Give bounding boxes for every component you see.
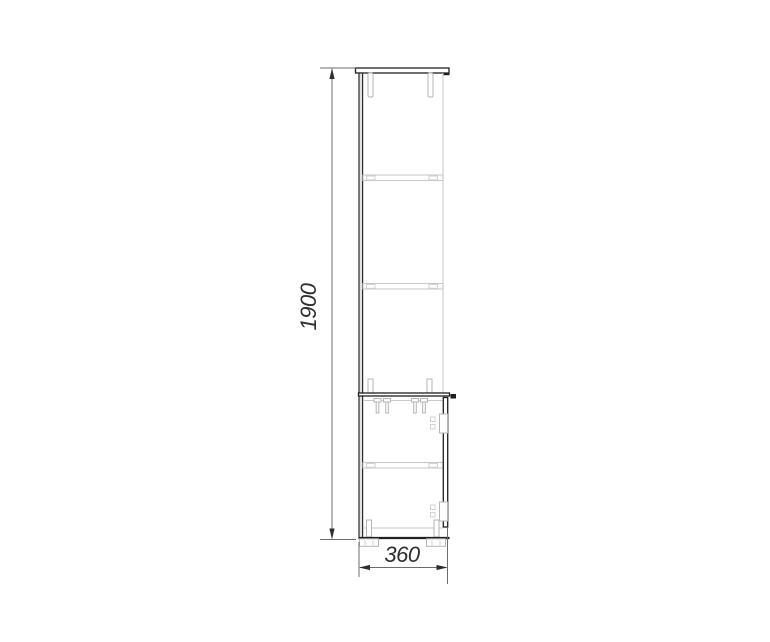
depth-dimension-label: 360 bbox=[384, 542, 420, 567]
cabinet-side-elevation-drawing: 1900 360 bbox=[0, 0, 770, 642]
foot-left bbox=[360, 539, 379, 547]
top-dowel-right bbox=[428, 73, 433, 97]
fixed-shelf bbox=[359, 379, 457, 413]
fixed-shelf-dowel-right bbox=[427, 379, 432, 394]
hinge-bottom bbox=[431, 502, 448, 521]
top-panel-front-lip bbox=[444, 73, 450, 75]
arrowhead-down-icon bbox=[329, 529, 334, 540]
cabinet-outline bbox=[356, 68, 457, 546]
hinge-cup bbox=[440, 502, 448, 521]
arrowhead-up-icon bbox=[329, 68, 334, 79]
top-dowel-left bbox=[368, 73, 373, 97]
fixed-shelf-board bbox=[359, 393, 450, 396]
hinge-plate-screw bbox=[431, 425, 436, 430]
foot-right bbox=[427, 539, 446, 547]
cam-screw-3 bbox=[412, 399, 419, 414]
corner-tick bbox=[451, 394, 457, 399]
hinge-plate-screw bbox=[431, 417, 436, 422]
cam-screw-1 bbox=[374, 399, 381, 414]
adjustable-shelf-1 bbox=[363, 175, 443, 181]
back-panel bbox=[359, 73, 363, 538]
arrowhead-right-icon bbox=[437, 565, 448, 570]
foot-stem-right bbox=[434, 520, 439, 537]
cam-screw-2 bbox=[384, 399, 391, 414]
hinge-cup bbox=[440, 414, 448, 433]
foot-stem-left bbox=[367, 520, 372, 537]
arrowhead-left-icon bbox=[359, 565, 370, 570]
hinge-top bbox=[431, 414, 448, 433]
cam-screw-4 bbox=[421, 399, 428, 414]
fixed-shelf-dowel-left bbox=[368, 379, 373, 394]
dimension-height: 1900 bbox=[296, 68, 356, 540]
hinge-plate-screw bbox=[431, 513, 436, 518]
lower-shelf bbox=[363, 463, 443, 469]
hinge-plate-screw bbox=[431, 505, 436, 510]
top-panel bbox=[356, 68, 450, 73]
height-dimension-label: 1900 bbox=[296, 282, 321, 330]
adjustable-shelf-2 bbox=[363, 284, 443, 290]
drawing-canvas: 1900 360 bbox=[0, 0, 770, 642]
